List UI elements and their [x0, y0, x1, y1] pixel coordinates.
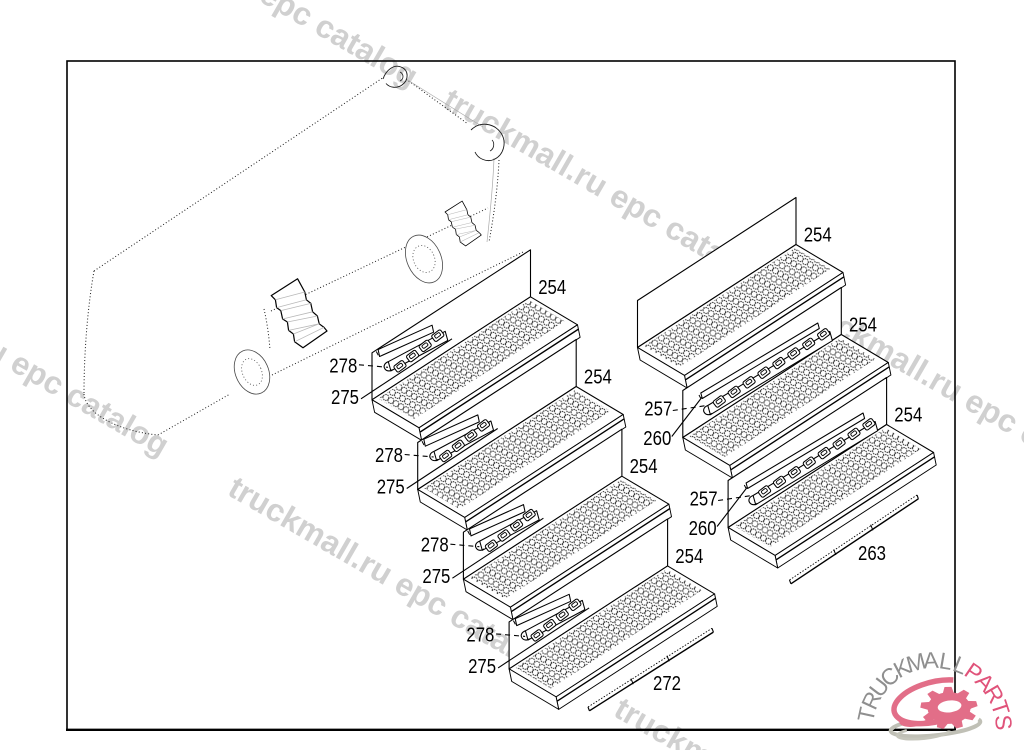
svg-text:272: 272 — [653, 673, 681, 695]
svg-text:278: 278 — [421, 535, 449, 557]
svg-text:278: 278 — [329, 355, 357, 377]
svg-text:260: 260 — [689, 518, 717, 540]
svg-text:257: 257 — [690, 489, 718, 511]
svg-text:278: 278 — [375, 445, 403, 467]
svg-text:254: 254 — [538, 277, 566, 299]
svg-text:254: 254 — [584, 367, 612, 389]
svg-text:263: 263 — [858, 543, 886, 565]
svg-text:257: 257 — [644, 399, 672, 421]
svg-text:275: 275 — [331, 387, 359, 409]
svg-text:254: 254 — [804, 225, 832, 247]
svg-text:254: 254 — [849, 315, 877, 337]
svg-text:275: 275 — [468, 656, 496, 678]
svg-text:278: 278 — [466, 624, 494, 646]
svg-text:254: 254 — [894, 405, 922, 427]
svg-text:260: 260 — [643, 428, 671, 450]
svg-text:254: 254 — [630, 456, 658, 478]
svg-text:275: 275 — [422, 566, 450, 588]
svg-text:S: S — [990, 714, 1017, 732]
svg-text:275: 275 — [377, 477, 405, 499]
svg-text:254: 254 — [675, 546, 703, 568]
